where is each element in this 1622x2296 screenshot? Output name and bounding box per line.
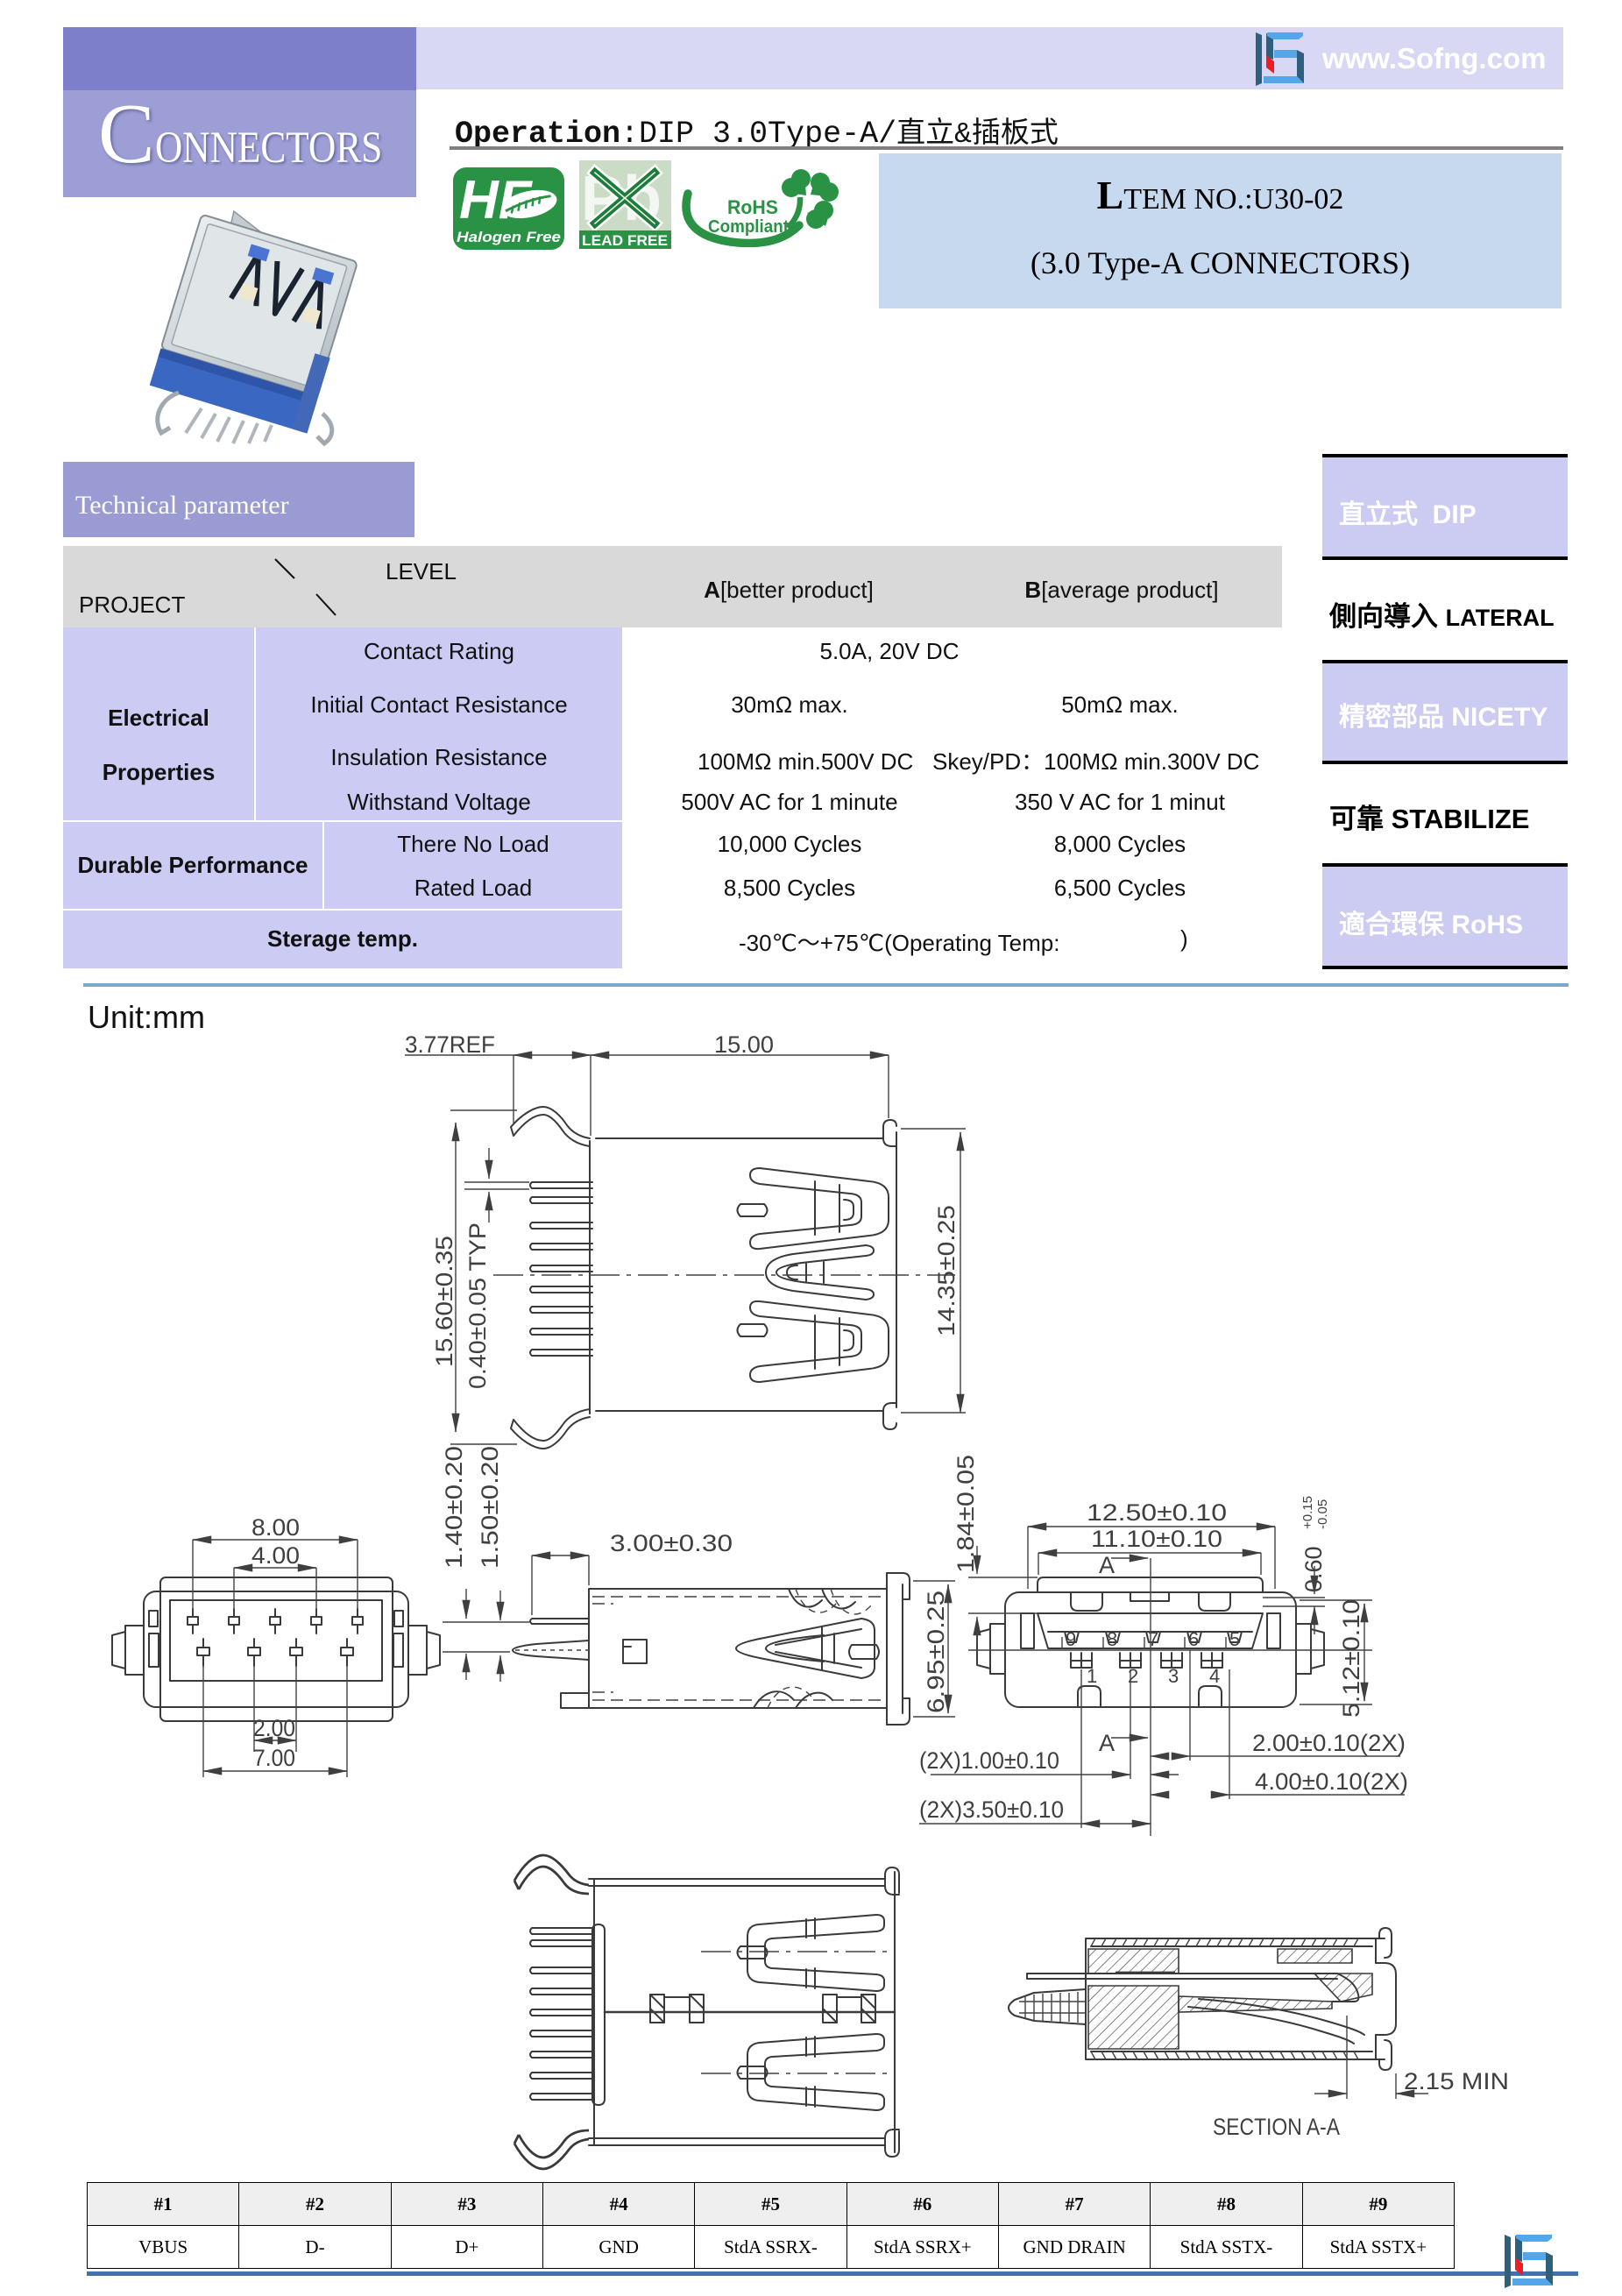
svg-text:5.12±0.10: 5.12±0.10 — [1338, 1599, 1364, 1718]
svg-text:3.77REF: 3.77REF — [405, 1034, 495, 1058]
svg-text:LEAD FREE: LEAD FREE — [582, 232, 668, 249]
svg-text:1.50±0.20: 1.50±0.20 — [477, 1446, 503, 1569]
svg-text:15.00: 15.00 — [714, 1034, 774, 1058]
svg-text:8: 8 — [1107, 1628, 1117, 1650]
svg-text:7: 7 — [1148, 1628, 1158, 1650]
svg-text:1: 1 — [1087, 1665, 1097, 1687]
svg-text:(2X)1.00±0.10: (2X)1.00±0.10 — [919, 1747, 1059, 1774]
svg-text:A: A — [1099, 1730, 1115, 1756]
svg-text:7.00: 7.00 — [253, 1745, 295, 1771]
svg-text:0.40±0.05 TYP: 0.40±0.05 TYP — [464, 1222, 491, 1389]
svg-text:SECTION A-A: SECTION A-A — [1213, 2114, 1340, 2140]
svg-text:+0.15: +0.15 — [1300, 1496, 1315, 1529]
svg-text:12.50±0.10: 12.50±0.10 — [1087, 1499, 1227, 1526]
svg-text:RoHS: RoHS — [727, 196, 778, 218]
svg-text:4: 4 — [1209, 1665, 1220, 1687]
svg-text:4.00: 4.00 — [251, 1542, 300, 1569]
svg-text:3: 3 — [1168, 1665, 1179, 1687]
svg-text:11.10±0.10: 11.10±0.10 — [1091, 1526, 1222, 1552]
svg-text:2.15 MIN: 2.15 MIN — [1404, 2068, 1509, 2094]
svg-text:5: 5 — [1229, 1628, 1240, 1650]
svg-text:Compliant: Compliant — [708, 217, 789, 237]
svg-text:1.40±0.20: 1.40±0.20 — [441, 1446, 467, 1569]
svg-text:15.60±0.35: 15.60±0.35 — [431, 1236, 457, 1367]
svg-text:9: 9 — [1066, 1628, 1076, 1650]
svg-text:-0.05: -0.05 — [1315, 1499, 1330, 1529]
svg-text:6: 6 — [1188, 1628, 1199, 1650]
svg-text:3.00±0.30: 3.00±0.30 — [610, 1530, 733, 1556]
svg-text:0.60: 0.60 — [1300, 1546, 1327, 1592]
svg-text:1.84±0.05: 1.84±0.05 — [953, 1455, 979, 1573]
svg-text:A: A — [1099, 1552, 1115, 1578]
svg-text:Halogen Free: Halogen Free — [457, 229, 561, 245]
svg-text:4.00±0.10(2X): 4.00±0.10(2X) — [1255, 1768, 1408, 1795]
svg-text:(2X)3.50±0.10: (2X)3.50±0.10 — [919, 1796, 1064, 1823]
svg-text:2.00±0.10(2X): 2.00±0.10(2X) — [1252, 1730, 1406, 1756]
svg-text:8.00: 8.00 — [251, 1514, 300, 1541]
svg-text:2: 2 — [1128, 1665, 1138, 1687]
svg-text:2.00: 2.00 — [253, 1715, 295, 1741]
svg-text:6.95±0.25: 6.95±0.25 — [923, 1591, 949, 1713]
svg-text:14.35±0.25: 14.35±0.25 — [933, 1205, 960, 1336]
